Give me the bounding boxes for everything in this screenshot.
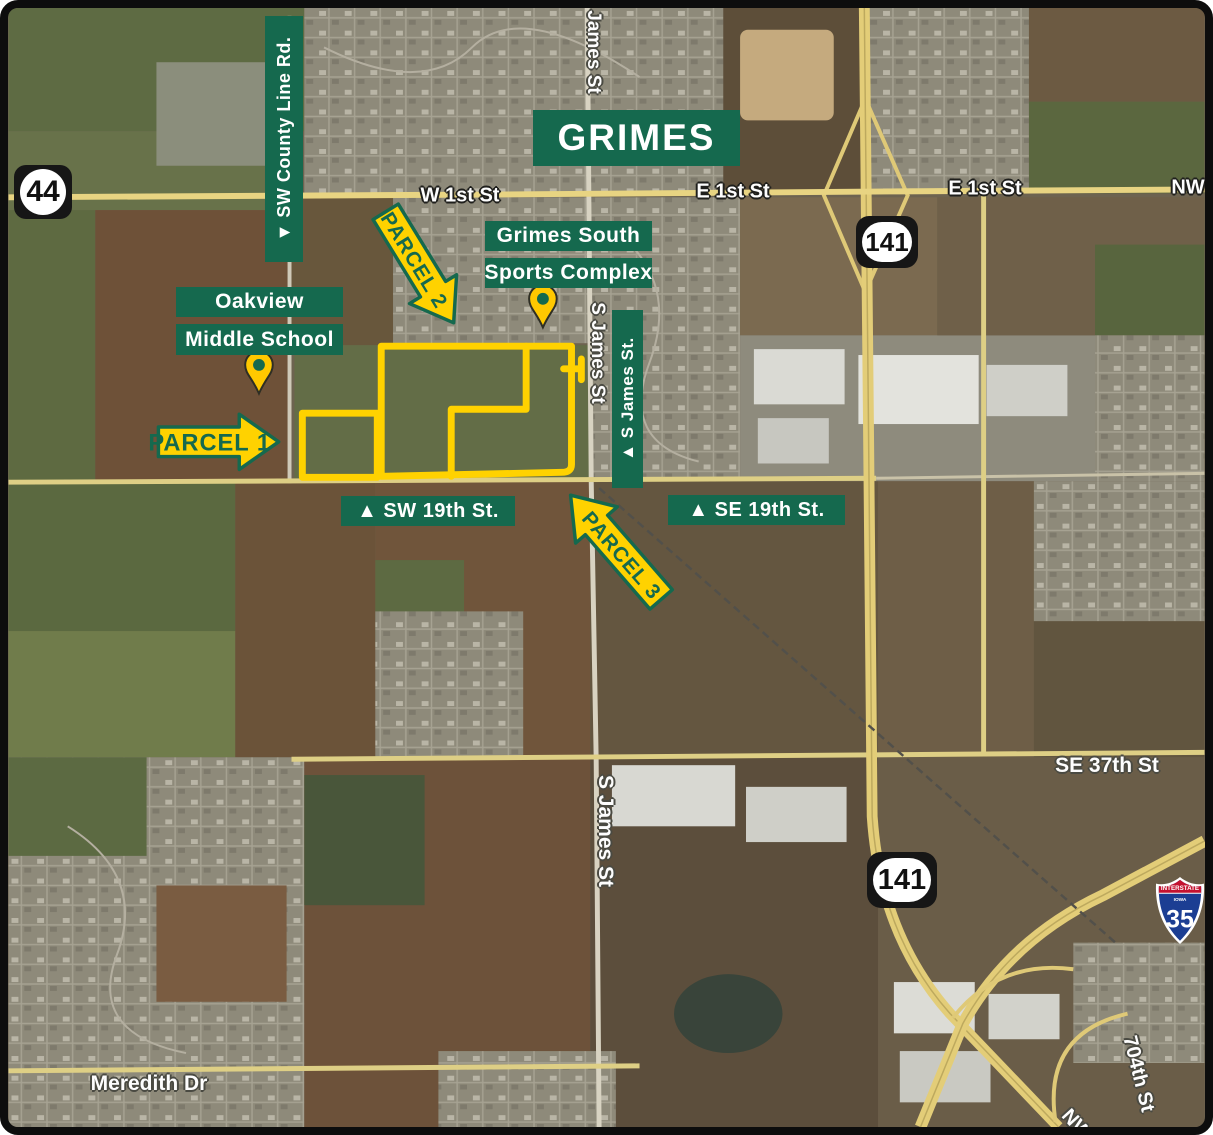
sw-county-line-rd-callout-text: ▼ SW County Line Rd. (265, 16, 303, 262)
parcel-2-arrow: PARCEL 2 (362, 197, 477, 337)
annotation-layer: PARCEL 1 PARCEL 2 PARCEL 3 (8, 8, 1205, 1127)
street-label-s-james-st-mid: S James St (586, 302, 608, 403)
parcel-1-arrow-label: PARCEL 1 (148, 431, 271, 457)
grimes-south-callout-line2: Sports Complex (485, 258, 652, 288)
se-19th-st-callout: ▲ SE 19th St. (668, 495, 845, 525)
sw-19th-st-callout: ▲ SW 19th St. (341, 496, 515, 526)
street-label-se-37th-st: SE 37th St (1055, 754, 1159, 778)
sw-county-line-rd-callout: ▼ SW County Line Rd. (265, 16, 303, 262)
location-pin-icon (529, 285, 557, 327)
route-141-shield-top: 141 (856, 216, 918, 268)
route-44-shield: 44 (14, 165, 72, 219)
street-label-e-1st-st-west: E 1st St (696, 181, 769, 204)
route-141-shield-top-number: 141 (862, 222, 912, 262)
s-james-st-callout-text: ▲ S James St. (612, 310, 643, 488)
parcel-3-arrow-label: PARCEL 3 (577, 507, 665, 604)
s-james-st-callout: ▲ S James St. (612, 310, 643, 488)
city-title-label: GRIMES (533, 110, 740, 166)
interstate-number-text: 35 (1166, 906, 1194, 934)
street-label-nw-top: NW (1171, 177, 1204, 200)
interstate-banner-text: INTERSTATE (1161, 885, 1199, 892)
parcel-1-outline (302, 413, 377, 477)
oakview-callout-line1: Oakview (176, 287, 343, 317)
oakview-callout-line2: Middle School (176, 324, 343, 355)
street-label-s-james-st-south: S James St (593, 775, 617, 887)
map-frame: PARCEL 1 PARCEL 2 PARCEL 3 W 1st St E 1s… (0, 0, 1213, 1135)
route-141-shield-bottom-number: 141 (873, 858, 931, 902)
location-pin-icon (245, 351, 273, 393)
route-141-shield-bottom: 141 (867, 852, 937, 908)
street-label-james-st-top: James St (582, 10, 604, 93)
interstate-35-shield: INTERSTATE IOWA 35 (1155, 876, 1205, 945)
street-label-e-1st-st-east: E 1st St (948, 178, 1021, 201)
parcel-divider-outline (451, 346, 526, 476)
parcel-3-arrow: PARCEL 3 (550, 477, 682, 617)
parcel-1-arrow: PARCEL 1 (148, 414, 278, 469)
street-label-meredith-dr: Meredith Dr (91, 1072, 208, 1096)
street-label-w-1st-st: W 1st St (421, 185, 500, 208)
grimes-south-callout-line1: Grimes South (485, 221, 652, 251)
route-44-shield-number: 44 (20, 169, 66, 215)
parcel-2-arrow-label: PARCEL 2 (376, 208, 452, 312)
interstate-state-text: IOWA (1174, 897, 1187, 903)
